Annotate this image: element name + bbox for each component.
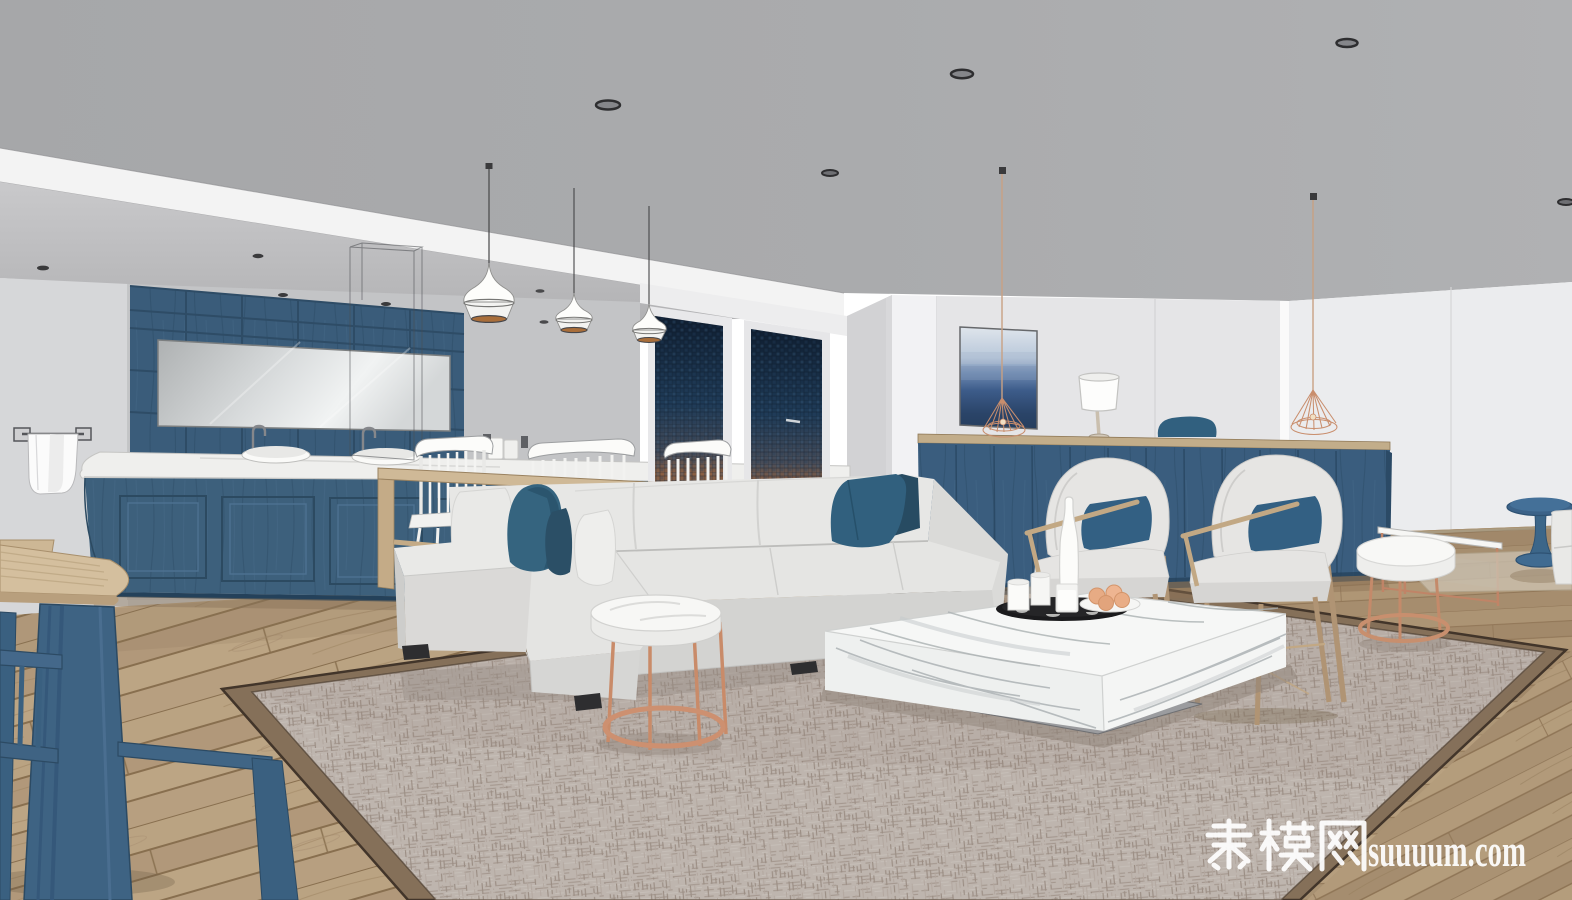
svg-text:suuuum.com: suuuum.com: [1368, 825, 1526, 876]
